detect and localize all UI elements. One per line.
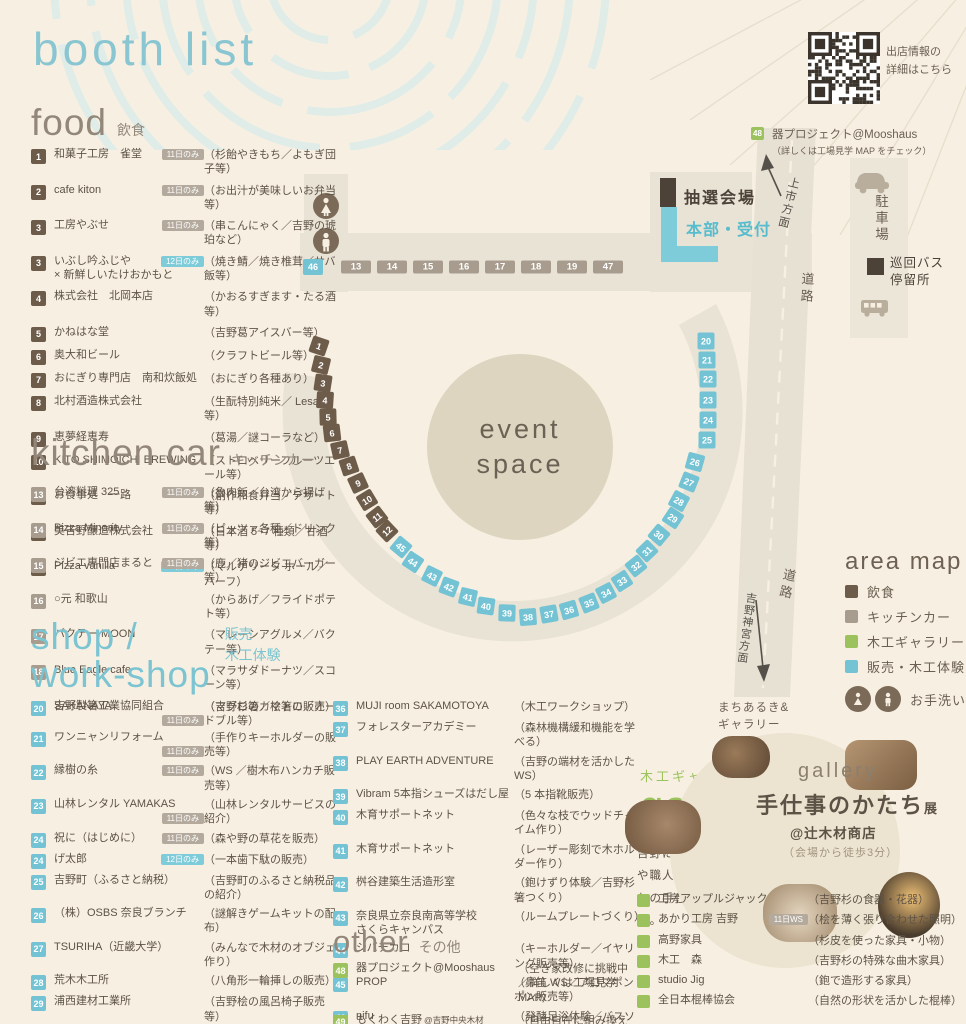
booth-desc: （かおるすぎます・たる酒等） xyxy=(204,290,336,319)
hq-l-horizontal xyxy=(661,246,718,262)
other-list: 48器プロジェクト@Mooshaus（空き家改修に挑戦中／詳しくは工場見学 MA… xyxy=(333,962,638,1024)
map-booth-marker: 20 xyxy=(698,333,715,350)
day-badge: 11日のみ xyxy=(162,149,204,160)
booth-name: もくわく吉野@吉野中央木材 xyxy=(356,1014,518,1024)
booth-desc: （ピッツァ各種／ドリンク等） xyxy=(204,522,336,551)
shop-title-line2: work-shop xyxy=(31,656,211,694)
booth-row: 22縁樹の糸11日のみ（WS ／樹木布ハンカチ販売等） xyxy=(31,764,336,793)
booth-number: 8 xyxy=(31,396,46,411)
booth-number xyxy=(637,955,650,968)
booth-row: 36MUJI room SAKAMOTOYA（木工ワークショップ） xyxy=(333,700,643,716)
booth-row: 27TSURIHA（近畿大学）（みんなで木材のオブジェ作り） xyxy=(31,941,336,970)
kitchen-title: kitchen car xyxy=(31,432,221,473)
lottery-block xyxy=(660,178,676,207)
booth-row: 工房アップルジャック（吉野杉の食器・花器） xyxy=(637,893,962,907)
legend-color-swatch xyxy=(845,610,858,623)
section-other-header: otherその他 xyxy=(333,926,461,958)
booth-name: 木育サポートネット xyxy=(356,809,514,823)
legend-item-label: 木工ギャラリー xyxy=(867,632,965,651)
booth-row: 25吉野町（ふるさと納税）（吉野町のふるさと納税品の紹介） xyxy=(31,874,336,903)
booth-number: 29 xyxy=(31,996,46,1011)
booth-number: 49 xyxy=(333,1015,348,1024)
booth-row: 6奥大和ビール（クラフトビール等） xyxy=(31,349,336,365)
booth-name: ○元 和歌山 xyxy=(54,593,204,607)
label-machiaruki: まちあるき& ギャラリー xyxy=(718,700,789,735)
booth-row: 24げ太郎12日のみ（一本歯下駄の販売） xyxy=(31,853,336,869)
legend-item: キッチンカー xyxy=(845,607,966,626)
booth-desc: （串こんにゃく／吉野の琥珀など） xyxy=(204,219,336,248)
showcase-note: （会場から徒歩3分） xyxy=(783,844,898,860)
map-booth-marker: 6 xyxy=(323,424,342,443)
showcase-title-text: 手仕事のかたち xyxy=(756,793,924,818)
booth-desc: （みんなで木材のオブジェ作り） xyxy=(204,941,336,970)
booth-number: 20 xyxy=(31,701,46,716)
bus-stop-block xyxy=(867,258,884,275)
booth-row: 3いぶし吟ふじや12日のみ× 新鮮しいたけおかもと（焼き鯖／焼き椎茸／サバ飯等） xyxy=(31,255,336,284)
day-badge: 11日のみ xyxy=(162,523,204,534)
booth-desc: （ルームプレートづくり） xyxy=(514,910,643,924)
booth-name: MUJI room SAKAMOTOYA xyxy=(356,700,514,714)
booth-name: かねはな堂 xyxy=(54,326,204,340)
booth-number xyxy=(637,894,650,907)
booth-desc: （杉皮を使った家具・小物） xyxy=(808,934,962,948)
map-booth-marker: 46 xyxy=(303,259,323,275)
female-toilet-icon xyxy=(845,686,871,712)
booth-row: 14Pizza Minority11日のみ（ピッツァ各種／ドリンク等） xyxy=(31,522,336,551)
day-badge: 12日のみ xyxy=(161,256,204,267)
section-food-header: food飲食 xyxy=(31,104,145,142)
booth-name: ジビエ専門店まると11日のみ xyxy=(54,557,204,571)
booth-number: 13 xyxy=(31,487,46,502)
booth-name: いぶし吟ふじや12日のみ× 新鮮しいたけおかもと xyxy=(54,255,204,283)
booth-row: 39Vibram 5本指シューズはだし屋（5 本指靴販売） xyxy=(333,788,643,804)
booth-number: 23 xyxy=(31,799,46,814)
map-booth-marker: 37 xyxy=(539,604,559,624)
label-hq: 本部・受付 xyxy=(686,216,771,240)
booth-number: 26 xyxy=(31,908,46,923)
booth-row: 20吉野製箸工業協同組合11日のみ（吉野杉箸／桧箸の販売） xyxy=(31,700,336,726)
booth-name-suffix: @吉野中央木材 xyxy=(424,1015,484,1024)
booth-row: 26（株）OSBS 奈良ブランチ（謎解きゲームキットの配布） xyxy=(31,907,336,936)
booth-number: 6 xyxy=(31,350,46,365)
note48-name: 器プロジェクト@Mooshaus xyxy=(772,126,931,142)
map-note-48: 48 器プロジェクト@Mooshaus （詳しくは工場見学 MAP をチェック） xyxy=(751,126,931,157)
booth-number: 48 xyxy=(333,963,348,978)
booth-number xyxy=(637,995,650,1008)
booth-number: 48 xyxy=(751,127,764,140)
map-booth-marker: 18 xyxy=(521,261,551,274)
booth-name: 工房やぶせ11日のみ xyxy=(54,219,204,233)
shop-subtitle: 販売 木工体験 xyxy=(225,624,281,693)
booth-name: 荒木木工所 xyxy=(54,974,204,988)
booth-desc: （吉野杉の食器・花器） xyxy=(808,893,962,907)
booth-desc: （鉋けずり体験／吉野杉箸つくり） xyxy=(514,876,643,905)
booth-row: 38PLAY EARTH ADVENTURE（吉野の端材を活かした WS） xyxy=(333,755,643,784)
label-bus-stop: 巡回バス 停留所 xyxy=(890,255,944,289)
booth-desc: （お出汁が美味しいお弁当等） xyxy=(204,184,336,213)
booth-row: 木工 森（吉野杉の特殊な曲木家具） xyxy=(637,954,962,968)
map-booth-marker: 22 xyxy=(700,371,717,388)
day-badge: 12日のみ xyxy=(161,854,204,865)
booth-name: 台湾料理 32511日のみ xyxy=(54,486,204,500)
legend-item-label: 飲食 xyxy=(867,582,895,601)
day-badge: 11日のみ xyxy=(162,746,204,757)
food-title: food xyxy=(31,102,107,143)
map-booth-marker: 23 xyxy=(700,392,717,409)
map-booth-marker: 19 xyxy=(557,261,587,274)
booth-desc: （吉野桧の風呂椅子販売等） xyxy=(204,995,336,1024)
booth-desc: （山林レンタルサービスの紹介） xyxy=(204,798,336,827)
booth-row: 48器プロジェクト@Mooshaus（空き家改修に挑戦中／詳しくは工場見学 MA… xyxy=(333,962,638,1005)
day-badge: 11日のみ xyxy=(162,220,204,231)
booth-row: あかり工房 吉野11日WS（桧を薄く張り合わせた照明） xyxy=(637,913,962,927)
booth-number: 40 xyxy=(333,810,348,825)
shop-list-left: 20吉野製箸工業協同組合11日のみ（吉野杉箸／桧箸の販売）21ワンニャンリフォー… xyxy=(31,700,336,1024)
booth-desc: （空き家改修に挑戦中／詳しくは工場見学 MAP） xyxy=(518,962,638,1005)
day-badge: 11日のみ xyxy=(162,813,204,824)
booth-row: 7おにぎり専門店 南和炊飯処（おにぎり各種あり） xyxy=(31,372,336,388)
gallery-photo-tableware xyxy=(712,736,770,778)
booth-name: フォレスターアカデミー xyxy=(356,721,514,735)
day-badge: 11日のみ xyxy=(162,487,204,498)
booth-name: cafe kiton11日のみ xyxy=(54,184,204,198)
label-lottery: 抽選会場 xyxy=(684,184,756,208)
booth-number: 3 xyxy=(31,256,46,271)
booth-name: 高野家具 xyxy=(658,934,808,948)
booth-name: 木育サポートネット xyxy=(356,843,514,857)
gallery-list: 工房アップルジャック（吉野杉の食器・花器）あかり工房 吉野11日WS（桧を薄く張… xyxy=(637,893,962,1015)
booth-name: 北村酒造株式会社 xyxy=(54,395,204,409)
booth-number: 36 xyxy=(333,701,348,716)
booth-row: 37フォレスターアカデミー（森林機構緩和機能を学べる） xyxy=(333,721,643,750)
legend-rows: 飲食キッチンカー木工ギャラリー販売・木工体験 xyxy=(845,582,966,676)
booth-row: 49もくわく吉野@吉野中央木材（自由自在に組み換えが可能な家具） xyxy=(333,1014,638,1024)
booth-desc: （一本歯下駄の販売） xyxy=(204,853,336,867)
booth-name: PLAY EARTH ADVENTURE xyxy=(356,755,514,769)
booth-number: 42 xyxy=(333,877,348,892)
booth-row: 15ジビエ専門店まると11日のみ（鹿／猪のジビエバーガー等） xyxy=(31,557,336,586)
booth-row: 全日本棍棒協会（自然の形状を活かした棍棒） xyxy=(637,994,962,1008)
kitchen-subtitle: キッチンカー xyxy=(231,452,315,468)
booth-number: 4 xyxy=(31,291,46,306)
map-booth-marker: 24 xyxy=(700,412,717,429)
booth-name: 器プロジェクト@Mooshaus xyxy=(356,962,518,976)
map-booth-marker: 38 xyxy=(519,608,537,626)
booth-desc: （八角形一輪挿しの販売） xyxy=(204,974,336,988)
booth-row: 28荒木木工所（八角形一輪挿しの販売） xyxy=(31,974,336,990)
booth-desc: （色々な枝でウッドチャイム作り） xyxy=(514,809,643,838)
booth-name: Pizza Minority11日のみ xyxy=(54,522,204,536)
booth-number: 24 xyxy=(31,833,46,848)
food-subtitle: 飲食 xyxy=(117,122,145,138)
booth-desc: （森林機構緩和機能を学べる） xyxy=(514,721,643,750)
booth-number: 28 xyxy=(31,975,46,990)
map-booth-marker: 4 xyxy=(316,391,334,409)
booth-row: 1和菓子工房 雀堂11日のみ（杉飴やきもち／よもぎ団子等） xyxy=(31,148,336,177)
booth-desc: （吉野杉箸／桧箸の販売） xyxy=(204,700,336,714)
booth-desc: （自由自在に組み換えが可能な家具） xyxy=(518,1014,638,1024)
booth-name: studio Jig xyxy=(658,974,808,988)
day-badge: 11日のみ xyxy=(162,765,204,776)
booth-number: 1 xyxy=(31,149,46,164)
map-booth-marker: 25 xyxy=(699,432,716,449)
booth-number: 5 xyxy=(31,327,46,342)
legend-item-label: 販売・木工体験 xyxy=(867,657,965,676)
booth-number xyxy=(637,914,650,927)
booth-row: 3工房やぶせ11日のみ（串こんにゃく／吉野の琥珀など） xyxy=(31,219,336,248)
booth-name: 和菓子工房 雀堂11日のみ xyxy=(54,148,204,162)
booth-number: 16 xyxy=(31,594,46,609)
event-space: event space xyxy=(427,354,613,540)
booth-desc: （森や野の草花を販売） xyxy=(204,832,336,846)
label-parking: 駐車場 xyxy=(870,194,890,244)
booth-name: 桝谷建築生活造形室 xyxy=(356,876,514,890)
map-booth-marker: 3 xyxy=(313,373,332,392)
map-booth-marker: 21 xyxy=(699,352,716,369)
booth-row: 42桝谷建築生活造形室（鉋けずり体験／吉野杉箸つくり） xyxy=(333,876,643,905)
booth-number: 37 xyxy=(333,722,348,737)
booth-name: 山林レンタル YAMAKAS11日のみ xyxy=(54,798,204,824)
booth-name: 祝に（はじめに）11日のみ xyxy=(54,832,204,846)
day-badge: 11日のみ xyxy=(162,715,204,726)
booth-name: げ太郎12日のみ xyxy=(54,853,204,867)
booth-name: ワンニャンリフォーム11日のみ xyxy=(54,731,204,757)
booth-number: 25 xyxy=(31,875,46,890)
booth-desc: （杉飴やきもち／よもぎ団子等） xyxy=(204,148,336,177)
booth-desc: （手作りキーホルダーの販売等） xyxy=(204,731,336,760)
booth-desc: （レーザー彫刻で木ホルダー作り） xyxy=(514,843,643,872)
booth-desc: （木工ワークショップ） xyxy=(514,700,643,714)
booth-number: 15 xyxy=(31,558,46,573)
area-map-legend: area map 飲食キッチンカー木工ギャラリー販売・木工体験 お手洗い xyxy=(845,548,966,712)
booth-name: 浦西建材工業所 xyxy=(54,995,204,1009)
map-booth-marker: 39 xyxy=(498,604,515,621)
booth-name: 全日本棍棒協会 xyxy=(658,994,808,1008)
label-road-top: 道路 xyxy=(796,272,817,307)
map-booth-marker: 16 xyxy=(449,261,479,274)
map-booth-marker: 13 xyxy=(341,261,371,274)
booth-desc: （魯肉飯／台湾から揚げ等） xyxy=(204,486,336,515)
booth-row: 21ワンニャンリフォーム11日のみ（手作りキーホルダーの販売等） xyxy=(31,731,336,760)
booth-name: 吉野町（ふるさと納税） xyxy=(54,874,204,888)
booth-number: 21 xyxy=(31,732,46,747)
booth-name: 工房アップルジャック xyxy=(658,893,808,907)
booth-row: 29浦西建材工業所（吉野桧の風呂椅子販売等） xyxy=(31,995,336,1024)
booth-list-poster: { "page": {"title":"booth list","qr_capt… xyxy=(0,0,966,1024)
booth-name: 株式会社 北岡本店 xyxy=(54,290,204,304)
booth-row: 2cafe kiton11日のみ（お出汁が美味しいお弁当等） xyxy=(31,184,336,213)
booth-number: 7 xyxy=(31,373,46,388)
showcase-main-title: 手仕事のかたち展 xyxy=(756,788,937,820)
booth-desc: （鉋で造形する家具） xyxy=(808,974,962,988)
map-booth-marker: 47 xyxy=(593,261,623,274)
booth-desc: （WS ／樹木布ハンカチ販売等） xyxy=(204,764,336,793)
day-badge: 11日のみ xyxy=(162,558,204,569)
booth-desc: （自然の形状を活かした棍棒） xyxy=(808,994,962,1008)
booth-desc: （5 本指靴販売） xyxy=(514,788,643,802)
legend-item: 飲食 xyxy=(845,582,966,601)
day-badge: 11日WS xyxy=(769,914,808,925)
booth-name: 奥大和ビール xyxy=(54,349,204,363)
booth-number: 41 xyxy=(333,844,348,859)
legend-toilet-label: お手洗い xyxy=(910,690,966,709)
day-badge: 11日のみ xyxy=(162,185,204,196)
booth-name: 縁樹の糸11日のみ xyxy=(54,764,204,778)
booth-desc: （桧を薄く張り合わせた照明） xyxy=(808,913,962,927)
legend-color-swatch xyxy=(845,635,858,648)
legend-item: 販売・木工体験 xyxy=(845,657,966,676)
booth-row: 23山林レンタル YAMAKAS11日のみ（山林レンタルサービスの紹介） xyxy=(31,798,336,827)
other-title: other xyxy=(333,924,409,959)
showcase-venue: @辻木材商店 xyxy=(790,822,877,842)
legend-color-swatch xyxy=(845,660,858,673)
booth-row: 24祝に（はじめに）11日のみ（森や野の草花を販売） xyxy=(31,832,336,848)
legend-item: 木工ギャラリー xyxy=(845,632,966,651)
booth-number: 3 xyxy=(31,220,46,235)
booth-desc: （吉野町のふるさと納税品の紹介） xyxy=(204,874,336,903)
showcase-title-suffix: 展 xyxy=(924,801,937,816)
booth-name: あかり工房 吉野11日WS xyxy=(658,913,808,927)
kitchen-car-list: 13台湾料理 32511日のみ（魯肉飯／台湾から揚げ等）14Pizza Mino… xyxy=(31,486,336,735)
booth-name: （株）OSBS 奈良ブランチ xyxy=(54,907,204,921)
booth-row: 40木育サポートネット（色々な枝でウッドチャイム作り） xyxy=(333,809,643,838)
note48-sub: （詳しくは工場見学 MAP をチェック） xyxy=(772,144,931,157)
booth-desc: （鹿／猪のジビエバーガー等） xyxy=(204,557,336,586)
booth-name: TSURIHA（近畿大学） xyxy=(54,941,204,955)
day-badge: 11日のみ xyxy=(162,833,204,844)
booth-desc: （吉野杉の特殊な曲木家具） xyxy=(808,954,962,968)
booth-number: 39 xyxy=(333,789,348,804)
booth-number xyxy=(637,935,650,948)
map-booth-marker: 14 xyxy=(377,261,407,274)
section-shop-header: shop / work-shop 販売 木工体験 xyxy=(31,618,281,693)
showcase-small-title: gallery xyxy=(798,760,878,783)
booth-number: 24 xyxy=(31,854,46,869)
booth-number: 2 xyxy=(31,185,46,200)
booth-number: 27 xyxy=(31,942,46,957)
legend-item-label: キッチンカー xyxy=(867,607,951,626)
booth-row: 4株式会社 北岡本店（かおるすぎます・たる酒等） xyxy=(31,290,336,319)
booth-name: 木工 森 xyxy=(658,954,808,968)
legend-title: area map xyxy=(845,548,966,576)
booth-row: 41木育サポートネット（レーザー彫刻で木ホルダー作り） xyxy=(333,843,643,872)
map-booth-marker: 15 xyxy=(413,261,443,274)
booth-number xyxy=(637,975,650,988)
booth-row: 高野家具（杉皮を使った家具・小物） xyxy=(637,934,962,948)
booth-name-line2: × 新鮮しいたけおかもと xyxy=(54,269,204,283)
legend-toilet-row: お手洗い xyxy=(845,686,966,712)
gallery-photo-chair-1 xyxy=(625,800,701,854)
booth-row: studio Jig（鉋で造形する家具） xyxy=(637,974,962,988)
booth-number: 38 xyxy=(333,756,348,771)
other-subtitle: その他 xyxy=(419,939,461,955)
booth-row: 13台湾料理 32511日のみ（魯肉飯／台湾から揚げ等） xyxy=(31,486,336,515)
booth-desc: （謎解きゲームキットの配布） xyxy=(204,907,336,936)
legend-color-swatch xyxy=(845,585,858,598)
booth-name: おにぎり専門店 南和炊飯処 xyxy=(54,372,204,386)
shop-title-line1: shop / xyxy=(31,618,211,656)
male-toilet-icon xyxy=(875,686,901,712)
booth-number: 14 xyxy=(31,523,46,538)
section-kitchen-header: kitchen carキッチンカー xyxy=(31,434,315,472)
booth-name: Vibram 5本指シューズはだし屋 xyxy=(356,788,514,802)
map-booth-marker: 17 xyxy=(485,261,515,274)
booth-row: 8北村酒造株式会社（生酛特別純米／ Lesake 等） xyxy=(31,395,336,424)
booth-number: 22 xyxy=(31,765,46,780)
booth-name: 吉野製箸工業協同組合11日のみ xyxy=(54,700,204,726)
map-booth-marker: 40 xyxy=(476,596,495,615)
booth-row: 5かねはな堂（吉野葛アイスバー等） xyxy=(31,326,336,342)
booth-desc: （吉野の端材を活かした WS） xyxy=(514,755,643,784)
